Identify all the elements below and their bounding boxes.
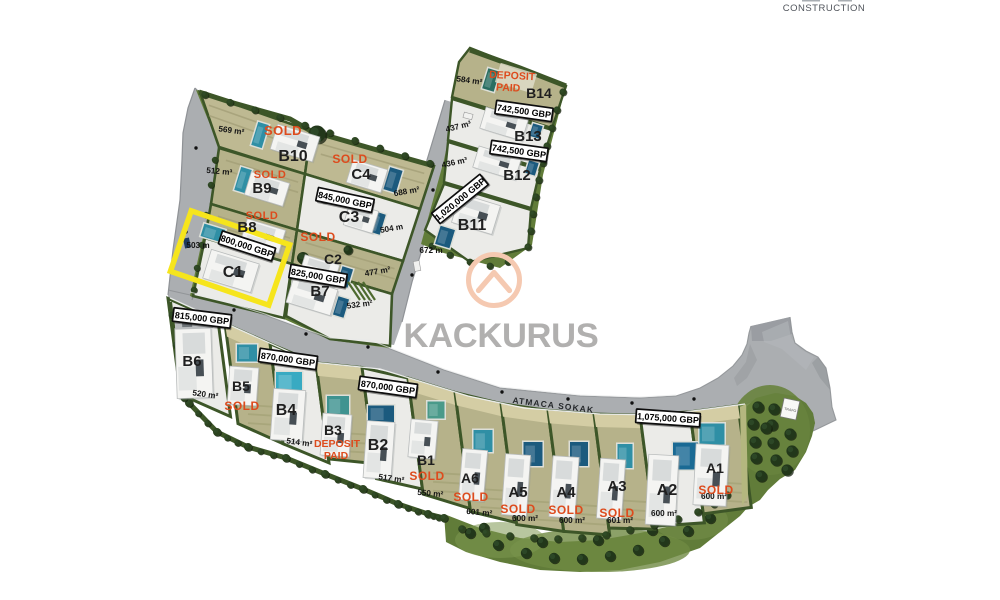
svg-text:B9: B9: [252, 180, 271, 197]
svg-text:A1: A1: [706, 460, 724, 476]
svg-text:C2: C2: [324, 251, 342, 267]
svg-text:672 m: 672 m: [419, 246, 442, 255]
svg-text:DEPOSIT: DEPOSIT: [314, 438, 361, 450]
svg-text:SOLD: SOLD: [300, 230, 335, 244]
svg-text:PAID: PAID: [324, 450, 349, 462]
svg-text:B10: B10: [278, 148, 307, 165]
svg-text:SOLD: SOLD: [332, 152, 367, 166]
svg-text:B6: B6: [182, 353, 201, 370]
svg-text:C3: C3: [339, 209, 360, 226]
svg-text:PAID: PAID: [496, 81, 521, 94]
svg-text:SOLD: SOLD: [453, 490, 488, 504]
svg-text:B2: B2: [368, 437, 389, 454]
svg-text:SOLD: SOLD: [246, 210, 279, 222]
svg-text:B4: B4: [276, 402, 297, 419]
svg-text:KACKURUS: KACKURUS: [403, 317, 598, 355]
svg-text:B5: B5: [232, 378, 250, 394]
svg-text:C4: C4: [351, 166, 371, 183]
svg-text:600 m²: 600 m²: [651, 509, 677, 518]
svg-text:SOLD: SOLD: [224, 399, 259, 413]
svg-text:SOLD: SOLD: [409, 469, 444, 483]
svg-text:600 m²: 600 m²: [559, 516, 585, 525]
svg-text:SOLD: SOLD: [500, 502, 535, 516]
svg-text:A6: A6: [461, 470, 479, 486]
svg-text:B12: B12: [503, 167, 531, 184]
svg-text:SOLD: SOLD: [254, 169, 287, 181]
svg-text:A5: A5: [508, 484, 527, 501]
svg-text:CONSTRUCTION: CONSTRUCTION: [783, 3, 866, 14]
svg-text:B11: B11: [458, 217, 487, 234]
svg-text:A3: A3: [607, 478, 626, 495]
svg-text:C1: C1: [223, 264, 244, 281]
svg-text:SOLD: SOLD: [264, 123, 302, 138]
svg-text:A2: A2: [657, 482, 678, 499]
svg-text:SOLD: SOLD: [599, 506, 634, 520]
svg-text:SOLD: SOLD: [698, 483, 733, 497]
svg-text:B1: B1: [417, 452, 435, 468]
svg-text:B13: B13: [514, 128, 542, 145]
svg-text:B3: B3: [324, 422, 342, 438]
svg-text:503 m: 503 m: [186, 241, 209, 250]
svg-text:A4: A4: [556, 484, 576, 501]
svg-text:B14: B14: [526, 85, 552, 101]
svg-text:SOLD: SOLD: [548, 503, 583, 517]
